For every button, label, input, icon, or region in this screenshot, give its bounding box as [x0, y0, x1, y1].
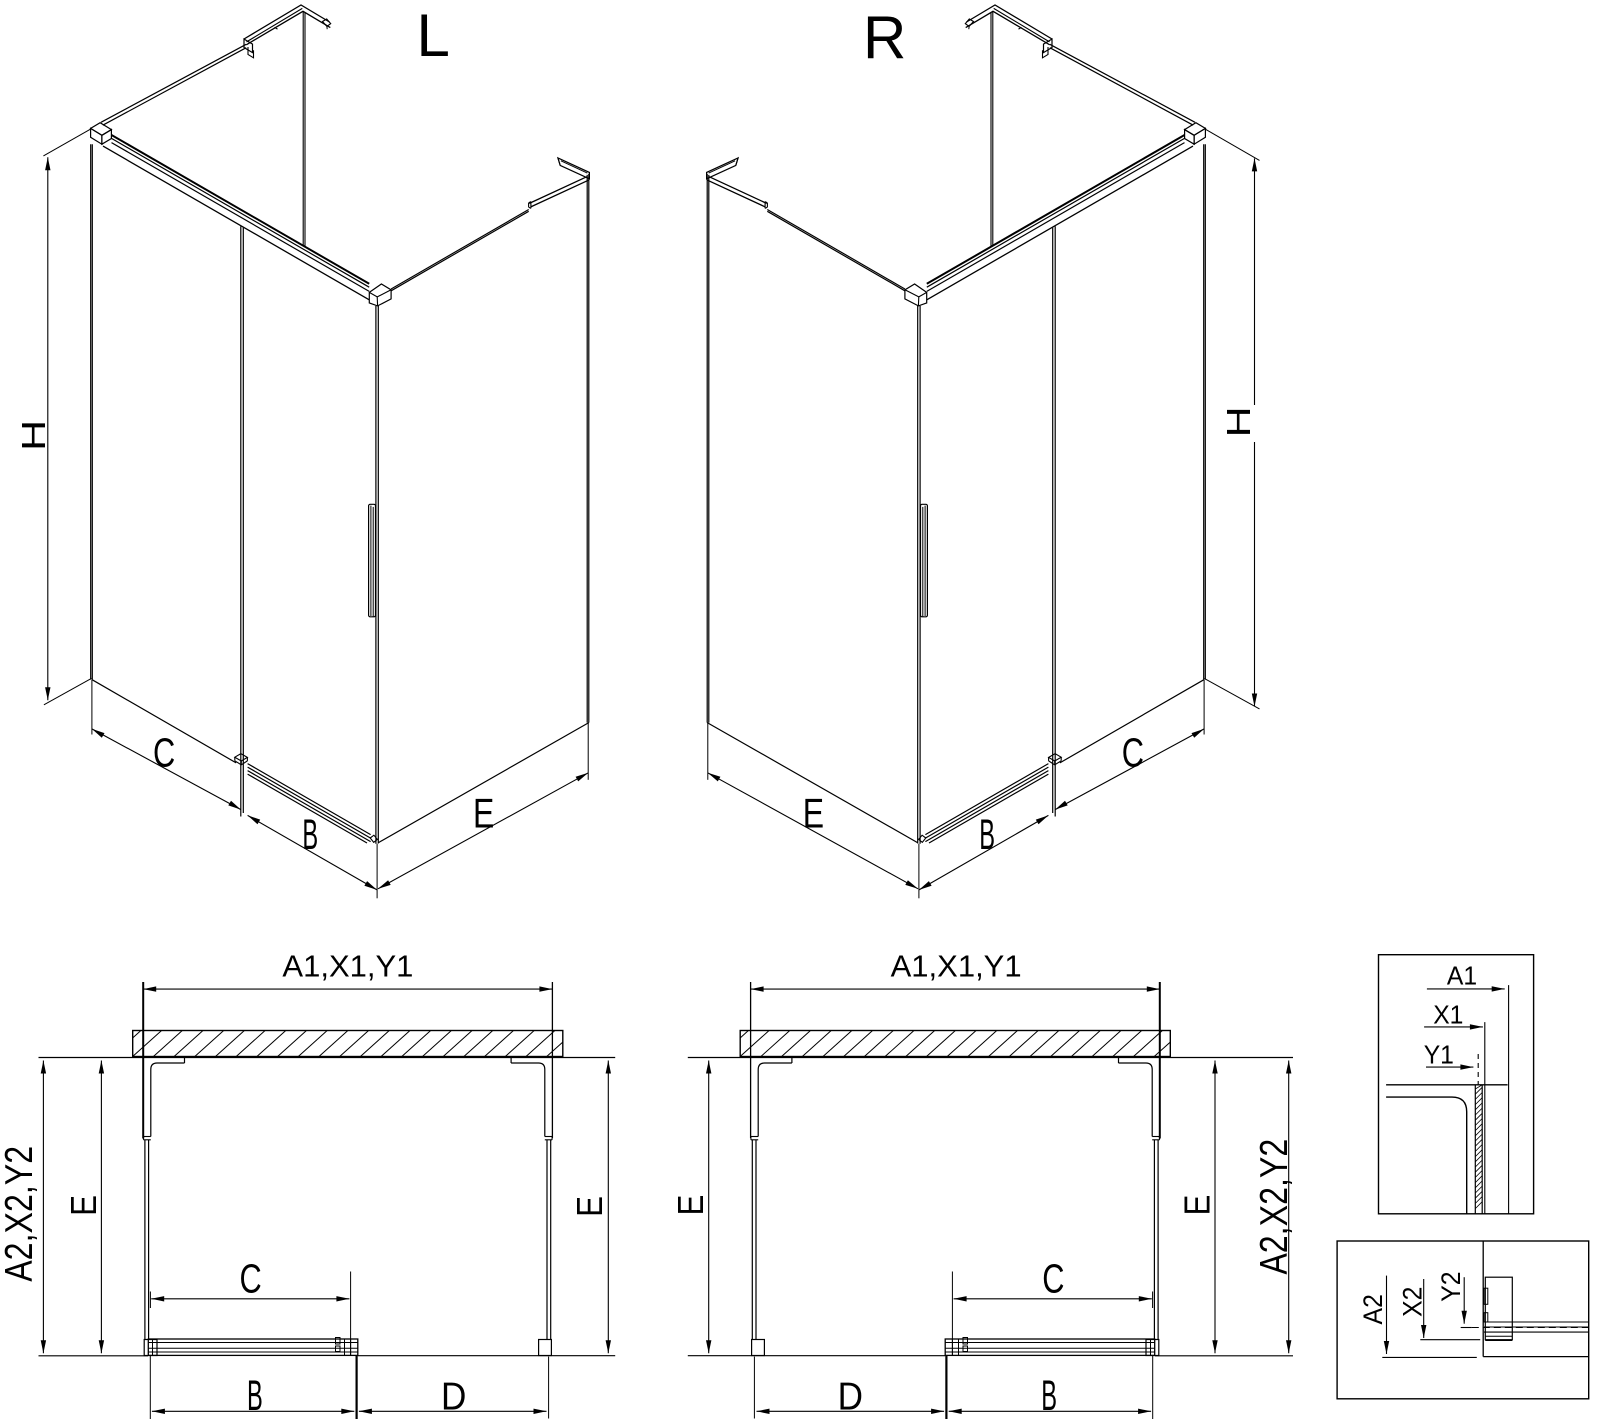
svg-text:E: E: [571, 1196, 611, 1217]
svg-text:C: C: [240, 1255, 262, 1301]
svg-text:B: B: [302, 812, 318, 859]
svg-text:A1,X1,Y1: A1,X1,Y1: [282, 949, 413, 984]
svg-text:C: C: [1042, 1255, 1064, 1301]
svg-text:C: C: [153, 729, 175, 775]
svg-text:A2: A2: [1359, 1294, 1388, 1324]
svg-text:D: D: [441, 1374, 466, 1418]
svg-text:X2: X2: [1399, 1287, 1428, 1317]
svg-text:B: B: [247, 1373, 263, 1420]
svg-text:Y2: Y2: [1437, 1271, 1466, 1301]
svg-text:A1,X1,Y1: A1,X1,Y1: [891, 949, 1022, 984]
svg-text:E: E: [672, 1195, 712, 1216]
svg-text:E: E: [803, 789, 824, 836]
svg-text:B: B: [1041, 1373, 1057, 1420]
svg-text:A1: A1: [1447, 962, 1477, 991]
svg-text:A2,X2,Y2: A2,X2,Y2: [0, 1146, 41, 1282]
svg-text:H: H: [1220, 406, 1257, 437]
svg-text:E: E: [473, 789, 494, 836]
svg-text:E: E: [65, 1195, 105, 1216]
svg-text:X1: X1: [1433, 1001, 1463, 1030]
svg-text:Y1: Y1: [1424, 1041, 1454, 1070]
svg-text:R: R: [863, 5, 906, 72]
svg-text:A2,X2,Y2: A2,X2,Y2: [1252, 1139, 1296, 1275]
svg-text:E: E: [1179, 1195, 1219, 1216]
svg-text:H: H: [15, 420, 52, 451]
svg-text:C: C: [1122, 729, 1144, 775]
svg-text:D: D: [838, 1374, 863, 1418]
svg-text:L: L: [417, 2, 450, 69]
svg-text:B: B: [979, 812, 995, 859]
